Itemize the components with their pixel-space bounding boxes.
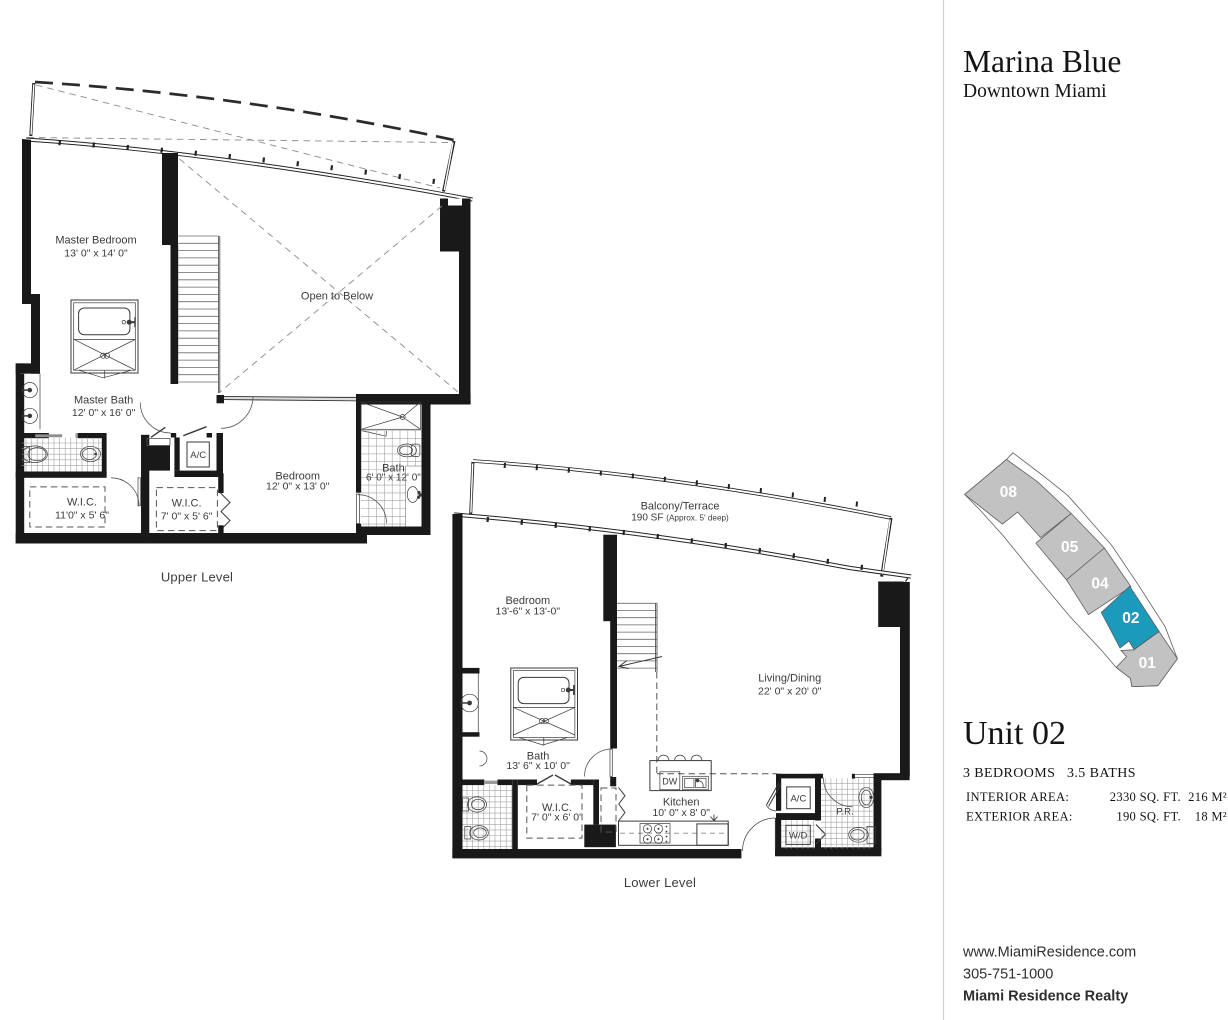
svg-text:W/D: W/D bbox=[789, 831, 808, 842]
svg-text:Master Bath: Master Bath bbox=[74, 395, 133, 407]
svg-text:A/C: A/C bbox=[790, 794, 806, 805]
svg-text:Upper Level: Upper Level bbox=[161, 570, 233, 585]
svg-text:Marina Blue: Marina Blue bbox=[963, 44, 1121, 79]
svg-text:11'0" x 5' 6": 11'0" x 5' 6" bbox=[55, 510, 109, 522]
svg-text:305-751-1000: 305-751-1000 bbox=[963, 967, 1053, 983]
svg-text:Unit 02: Unit 02 bbox=[963, 715, 1066, 752]
svg-text:W.I.C.: W.I.C. bbox=[67, 497, 97, 509]
svg-text:216 M²: 216 M² bbox=[1188, 790, 1227, 804]
svg-text:www.MiamiResidence.com: www.MiamiResidence.com bbox=[962, 945, 1136, 961]
svg-text:INTERIOR AREA:: INTERIOR AREA: bbox=[966, 790, 1069, 804]
svg-text:Balcony/Terrace: Balcony/Terrace bbox=[641, 500, 720, 512]
svg-text:05: 05 bbox=[1061, 539, 1079, 556]
svg-text:01: 01 bbox=[1139, 655, 1157, 672]
svg-text:P.R.: P.R. bbox=[836, 807, 853, 818]
svg-text:08: 08 bbox=[1000, 484, 1018, 501]
svg-text:12' 0" x 16' 0": 12' 0" x 16' 0" bbox=[72, 407, 136, 419]
svg-text:Lower Level: Lower Level bbox=[624, 875, 696, 890]
svg-text:7' 0" x 5' 6": 7' 0" x 5' 6" bbox=[161, 511, 213, 523]
svg-text:18 M²: 18 M² bbox=[1195, 810, 1227, 824]
svg-text:Living/Dining: Living/Dining bbox=[758, 673, 821, 685]
svg-text:13'-6" x 13'-0": 13'-6" x 13'-0" bbox=[496, 606, 561, 618]
svg-text:Master Bedroom: Master Bedroom bbox=[55, 235, 136, 247]
svg-text:3.5 BATHS: 3.5 BATHS bbox=[1067, 766, 1136, 781]
svg-text:Downtown Miami: Downtown Miami bbox=[963, 81, 1107, 102]
svg-text:13' 6" x 10' 0": 13' 6" x 10' 0" bbox=[506, 760, 570, 772]
svg-text:13' 0" x 14' 0": 13' 0" x 14' 0" bbox=[64, 248, 128, 260]
svg-text:Open to Below: Open to Below bbox=[301, 291, 373, 303]
svg-text:7' 0" x 6' 0": 7' 0" x 6' 0" bbox=[531, 812, 583, 824]
svg-text:12' 0" x 13' 0": 12' 0" x 13' 0" bbox=[266, 481, 330, 493]
svg-text:3 BEDROOMS: 3 BEDROOMS bbox=[963, 766, 1055, 781]
svg-text:02: 02 bbox=[1122, 610, 1139, 627]
svg-text:22' 0" x 20' 0": 22' 0" x 20' 0" bbox=[758, 686, 822, 698]
svg-text:10' 0" x 8' 0": 10' 0" x 8' 0" bbox=[652, 807, 710, 819]
svg-text:2330 SQ. FT.: 2330 SQ. FT. bbox=[1110, 790, 1181, 804]
svg-text:A/C: A/C bbox=[190, 450, 206, 461]
svg-text:190 SQ. FT.: 190 SQ. FT. bbox=[1116, 810, 1181, 824]
svg-text:04: 04 bbox=[1091, 576, 1109, 593]
svg-text:W.I.C.: W.I.C. bbox=[172, 498, 202, 510]
svg-text:Miami Residence Realty: Miami Residence Realty bbox=[963, 989, 1128, 1005]
svg-text:190 SF (Approx. 5' deep): 190 SF (Approx. 5' deep) bbox=[631, 512, 729, 523]
svg-text:EXTERIOR AREA:: EXTERIOR AREA: bbox=[966, 810, 1073, 824]
svg-text:6' 0" x 12' 0": 6' 0" x 12' 0" bbox=[366, 473, 421, 484]
svg-text:DW: DW bbox=[662, 777, 677, 787]
